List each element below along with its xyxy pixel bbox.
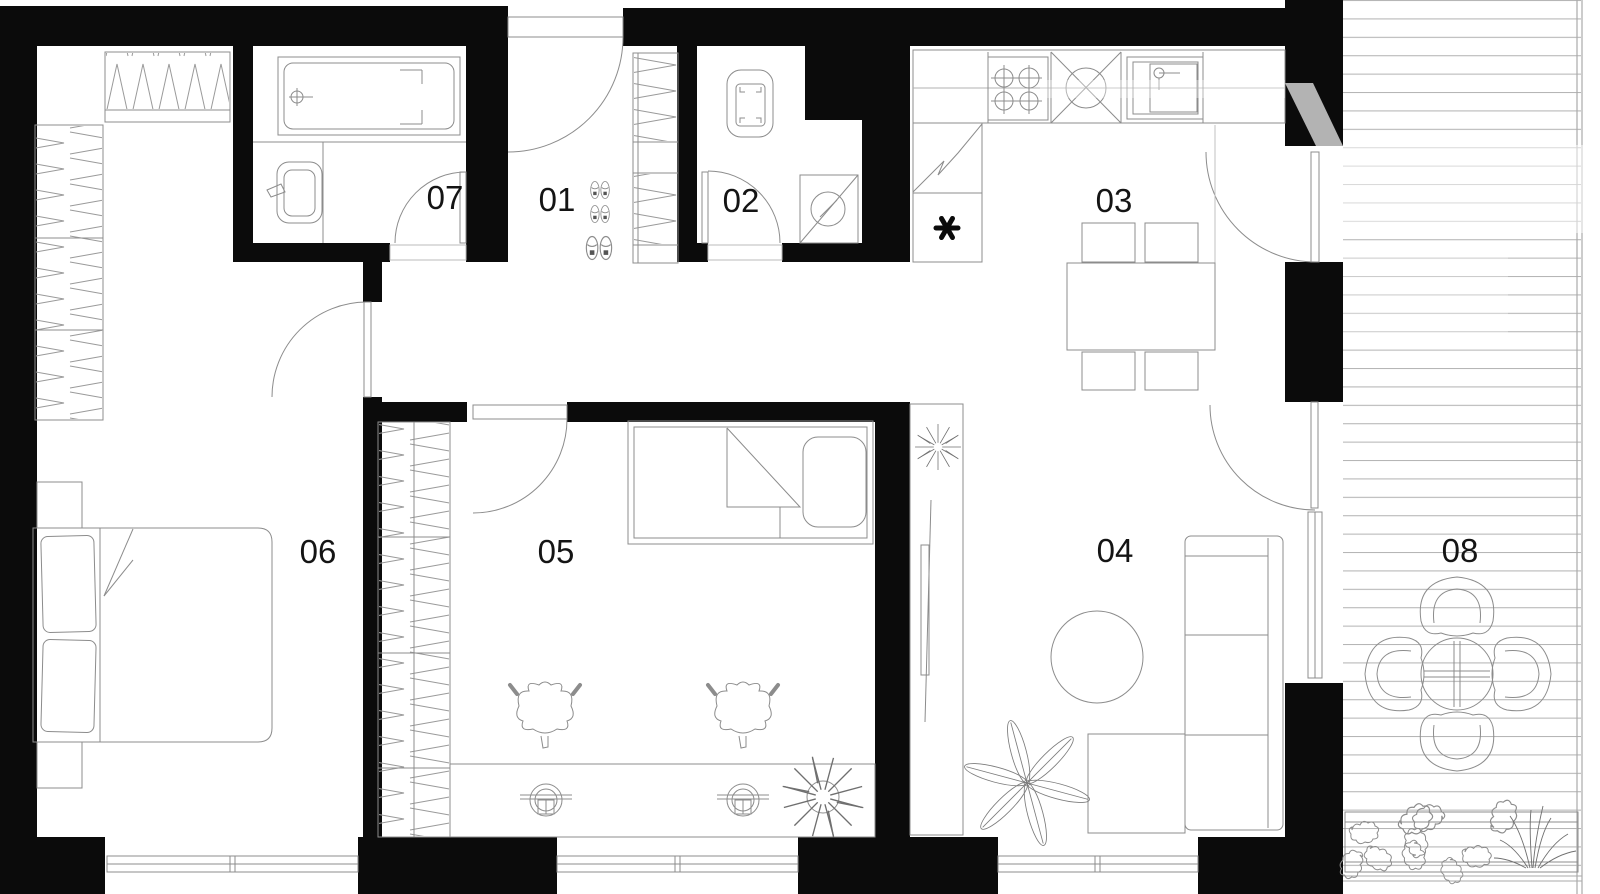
- room-label-06: 06: [300, 533, 337, 570]
- wall-left: [0, 6, 37, 894]
- floor-plan-page: 01 02 03 04 05 06 07 08: [0, 0, 1600, 894]
- wall-niche: [805, 8, 910, 120]
- wall-kids-living: [875, 402, 910, 837]
- room-label-07: 07: [427, 179, 464, 216]
- room-label-05: 05: [538, 533, 575, 570]
- room-label-03: 03: [1096, 182, 1133, 219]
- wall-right-mid: [1285, 262, 1343, 402]
- wall-bath-hall: [466, 44, 508, 262]
- wall-wc-kitchen: [862, 120, 910, 262]
- wall-bath-left: [233, 44, 253, 262]
- wall-hall-wc: [677, 8, 697, 262]
- wall-top-left: [37, 6, 508, 46]
- terrace-deck-boards: [1343, 0, 1582, 894]
- floor-plan-drawing: 01 02 03 04 05 06 07 08: [0, 0, 1600, 894]
- wardrobe-icon: [35, 125, 103, 420]
- room-label-01: 01: [539, 181, 576, 218]
- wall-bath-bottom: [233, 243, 390, 262]
- wardrobe-icon: [378, 422, 450, 837]
- room-label-04: 04: [1097, 532, 1134, 569]
- room-label-08: 08: [1442, 532, 1479, 569]
- wall-corridor-bottom: [567, 402, 875, 422]
- wall-top-right: [623, 8, 1285, 46]
- room-label-02: 02: [723, 182, 760, 219]
